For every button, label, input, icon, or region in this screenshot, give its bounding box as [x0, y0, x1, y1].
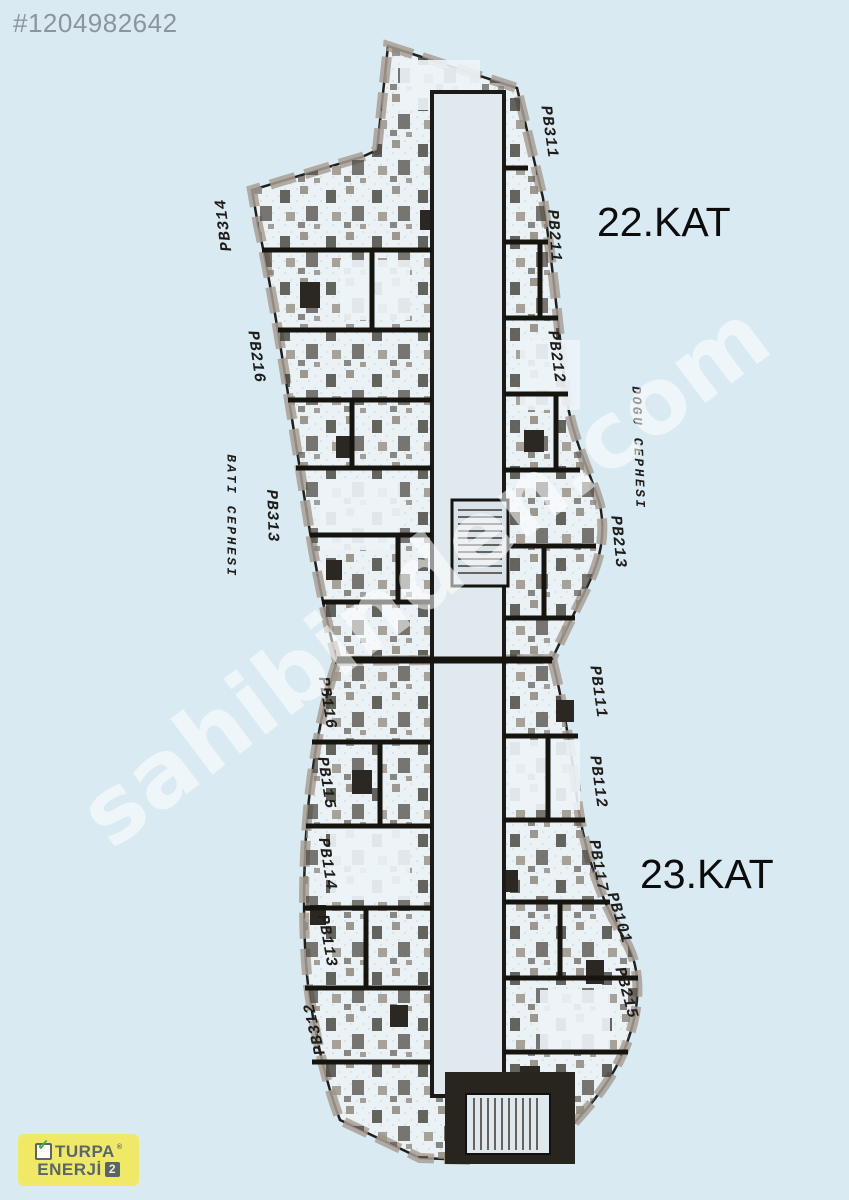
- logo-row-2: ENERJİ 2: [37, 1161, 119, 1178]
- listing-photo-page: #1204982642: [0, 0, 849, 1200]
- floor-title-22: 22.KAT: [597, 199, 731, 246]
- floor-plan-drawing: [0, 0, 849, 1200]
- logo-word-turpa: TURPA: [55, 1143, 115, 1160]
- logo-row-1: ✓ TURPA ®: [35, 1143, 122, 1160]
- logo-badge-2: 2: [105, 1162, 120, 1177]
- bottom-stair-core: [445, 1072, 575, 1164]
- corridor: [432, 92, 504, 1096]
- floor-title-23: 23.KAT: [640, 851, 774, 898]
- logo-word-enerji: ENERJİ: [37, 1161, 101, 1178]
- turpa-enerji-logo: ✓ TURPA ® ENERJİ 2: [18, 1134, 139, 1186]
- check-glyph: ✓: [37, 1138, 50, 1153]
- stair-core: [452, 500, 508, 586]
- checkbox-icon: ✓: [35, 1143, 52, 1160]
- registered-mark: ®: [117, 1144, 122, 1151]
